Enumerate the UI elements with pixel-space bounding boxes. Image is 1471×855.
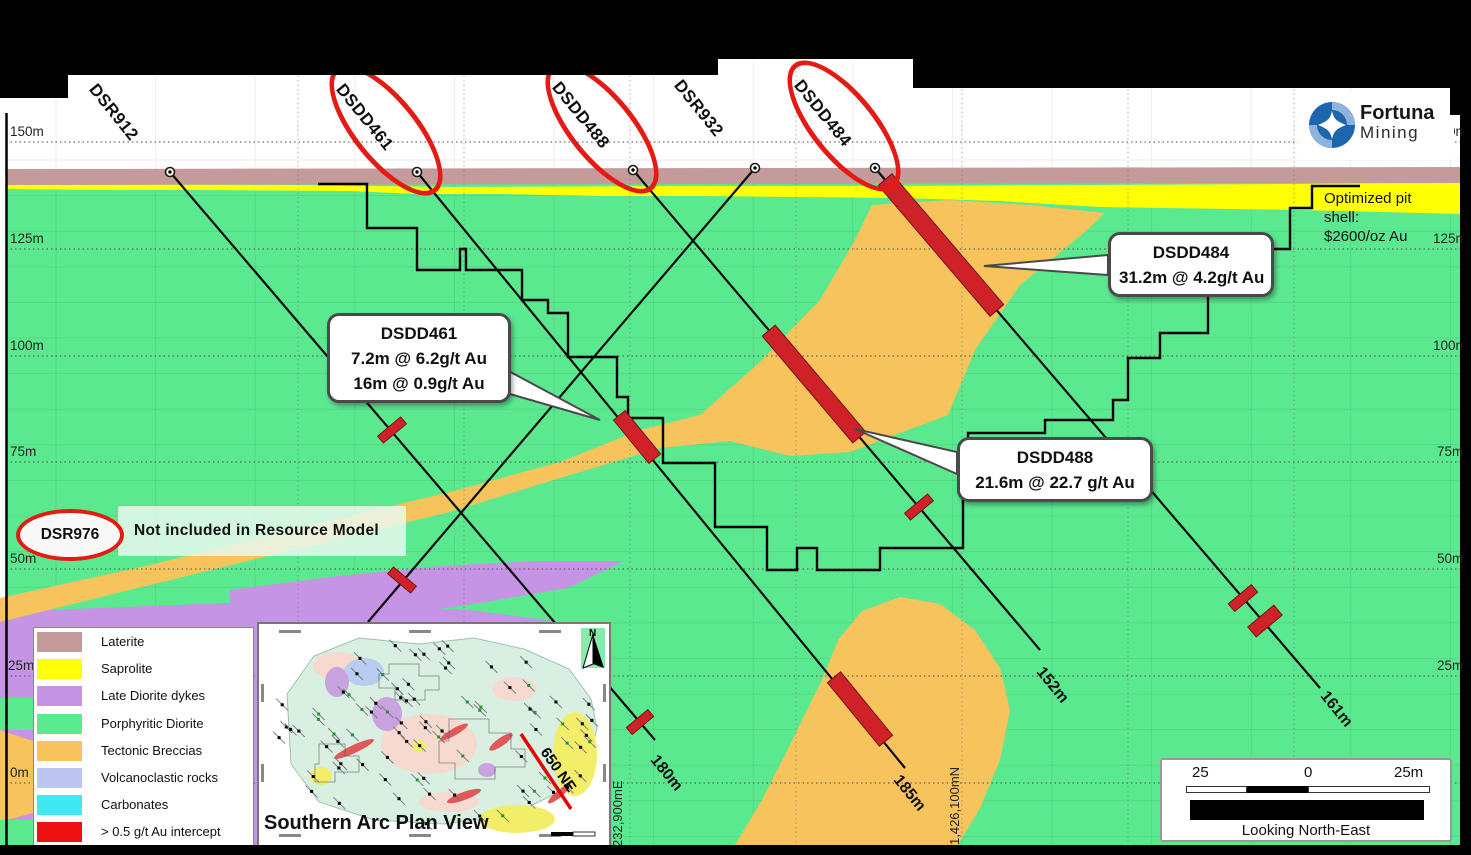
- callout-DSDD484: DSDD484 31.2m @ 4.2g/t Au: [1108, 232, 1274, 297]
- scale-0: 0: [1304, 764, 1312, 781]
- callout-DSDD461-title: DSDD461: [338, 321, 500, 346]
- legend-row-intercept: > 0.5 g/t Au intercept: [34, 818, 253, 845]
- cross-section-slide: 150m 125m 100m 75m 50m 25m 0m 150m 125m …: [0, 0, 1471, 855]
- legend-row-breccias: Tectonic Breccias: [34, 737, 253, 764]
- callout-DSDD461-line1: 7.2m @ 6.2g/t Au: [338, 346, 500, 371]
- legend-row-diorite: Porphyritic Diorite: [34, 710, 253, 737]
- pit-shell-line2: shell:: [1324, 208, 1412, 227]
- legend-row-carbonates: Carbonates: [34, 791, 253, 818]
- callout-DSDD488: DSDD488 21.6m @ 22.7 g/t Au: [957, 437, 1153, 502]
- pit-shell-line1: Optimized pit: [1324, 189, 1412, 208]
- callout-DSDD461-line2: 16m @ 0.9g/t Au: [338, 371, 500, 396]
- legend-swatch-volcanoclastic: [37, 768, 82, 788]
- legend-swatch-diorite: [37, 714, 82, 734]
- elev-right-50: 50m: [1437, 551, 1463, 566]
- legend-label-dykes: Late Diorite dykes: [101, 688, 205, 703]
- scale-box: 25 0 25m Looking North-East: [1160, 758, 1452, 842]
- legend-label-laterite: Laterite: [101, 634, 144, 649]
- legend: Laterite Saprolite Late Diorite dykes Po…: [33, 627, 254, 847]
- legend-label-saprolite: Saprolite: [101, 661, 152, 676]
- mask-right-edge: [1462, 115, 1471, 855]
- mask-top-left: [0, 0, 718, 75]
- callout-DSDD488-title: DSDD488: [968, 445, 1142, 470]
- elev-right-25: 25m: [1437, 658, 1463, 673]
- legend-row-saprolite: Saprolite: [34, 655, 253, 682]
- legend-swatch-breccias: [37, 741, 82, 761]
- northing-label: 1,426,100mN: [947, 767, 962, 845]
- legend-swatch-saprolite: [37, 659, 82, 679]
- legend-row-laterite: Laterite: [34, 628, 253, 655]
- easting-label: 232,900mE: [610, 781, 625, 848]
- legend-swatch-laterite: [37, 632, 82, 652]
- pit-shell-line3: $2600/oz Au: [1324, 227, 1412, 246]
- mask-corner-right: [1450, 88, 1471, 115]
- inset-title: Southern Arc Plan View: [264, 812, 489, 835]
- scale-25m: 25m: [1394, 764, 1423, 781]
- inset-scalebar: [551, 832, 595, 836]
- elev-left-125: 125m: [10, 231, 44, 246]
- legend-label-carbonates: Carbonates: [101, 797, 168, 812]
- redacted-text-bar: [1190, 800, 1424, 820]
- inset-plan-view: 650 NE N Southern Arc Plan View: [257, 622, 611, 847]
- pit-shell-label: Optimized pit shell: $2600/oz Au: [1324, 189, 1412, 246]
- north-arrow-n: N: [589, 628, 596, 639]
- legend-label-breccias: Tectonic Breccias: [101, 743, 202, 758]
- callout-DSDD461: DSDD461 7.2m @ 6.2g/t Au 16m @ 0.9g/t Au: [327, 313, 511, 403]
- north-arrow-icon: N: [581, 628, 605, 668]
- mask-corner-left: [0, 0, 68, 98]
- mask-bottom: [0, 845, 1471, 855]
- legend-label-intercept: > 0.5 g/t Au intercept: [101, 824, 221, 839]
- dsr976-ellipse: DSR976: [16, 509, 124, 561]
- scale-25-left: 25: [1192, 764, 1209, 781]
- geology-laterite: [6, 167, 1462, 185]
- note-band: Not included in Resource Model: [118, 506, 406, 556]
- legend-label-volcanoclastic: Volcanoclastic rocks: [101, 770, 218, 785]
- scalebar-seg2: [1247, 786, 1308, 793]
- legend-swatch-dykes: [37, 686, 82, 706]
- legend-row-dykes: Late Diorite dykes: [34, 682, 253, 709]
- elev-left-150: 150m: [10, 124, 44, 139]
- mask-top-right: [913, 55, 1471, 88]
- legend-row-volcanoclastic: Volcanoclastic rocks: [34, 764, 253, 791]
- elev-left-75: 75m: [10, 444, 36, 459]
- logo-name: Fortuna: [1360, 102, 1434, 125]
- callout-DSDD484-line1: 31.2m @ 4.2g/t Au: [1119, 265, 1263, 290]
- scalebar-seg1: [1186, 786, 1247, 793]
- fortuna-mining-logo: Fortuna Mining: [1298, 90, 1454, 160]
- legend-swatch-intercept: [37, 822, 82, 842]
- dsr976-label: DSR976: [41, 526, 100, 544]
- logo-sub: Mining: [1360, 123, 1419, 143]
- elev-right-75: 75m: [1437, 444, 1463, 459]
- note-text: Not included in Resource Model: [118, 522, 379, 540]
- legend-label-diorite: Porphyritic Diorite: [101, 716, 204, 731]
- fortuna-logo-icon: [1306, 99, 1358, 151]
- elev-left-0: 0m: [10, 765, 29, 780]
- elev-left-100: 100m: [10, 338, 44, 353]
- scalebar-seg3: [1308, 786, 1430, 793]
- view-direction-caption: Looking North-East: [1162, 822, 1450, 839]
- callout-DSDD488-line1: 21.6m @ 22.7 g/t Au: [968, 470, 1142, 495]
- elev-left-25: 25m: [8, 658, 34, 673]
- callout-DSDD484-title: DSDD484: [1119, 240, 1263, 265]
- legend-swatch-carbonates: [37, 795, 82, 815]
